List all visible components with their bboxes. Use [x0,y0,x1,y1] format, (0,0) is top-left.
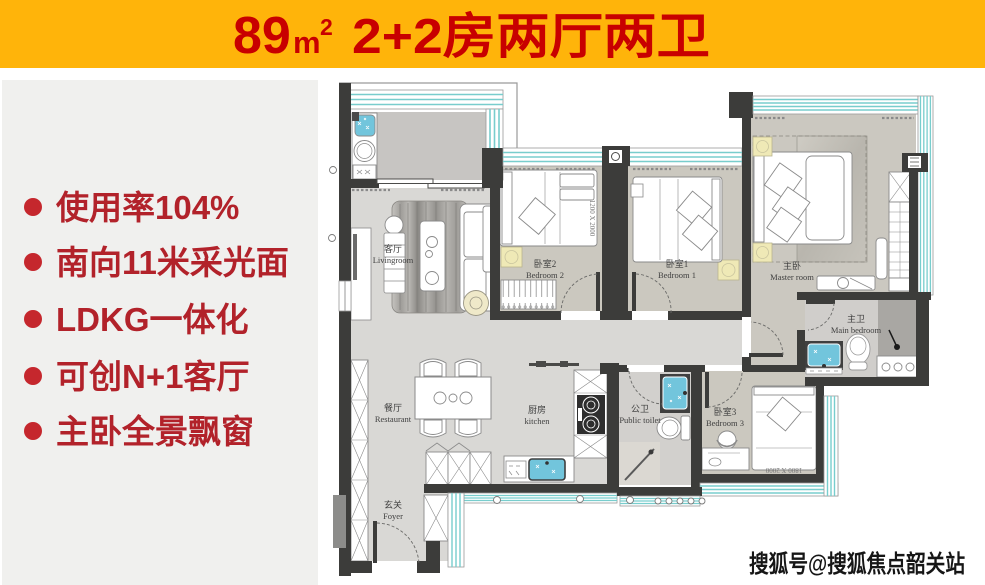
svg-text:1200 X 2000: 1200 X 2000 [588,200,596,237]
svg-text:公卫: 公卫 [631,404,649,414]
svg-text:主卫: 主卫 [847,313,865,324]
svg-text:Main bedroom: Main bedroom [831,325,882,335]
svg-text:主卧全景飘窗: 主卧全景飘窗 [56,413,254,450]
svg-text:厨房: 厨房 [528,404,546,415]
svg-text:玄关: 玄关 [384,499,402,510]
svg-text:Public toilet: Public toilet [619,415,661,425]
svg-text:1800 X 2000: 1800 X 2000 [765,466,802,474]
svg-text:89: 89 [233,7,291,65]
svg-text:搜狐号@搜狐焦点韶关站: 搜狐号@搜狐焦点韶关站 [749,550,965,578]
svg-text:使用率104%: 使用率104% [56,189,239,226]
svg-text:kitchen: kitchen [524,416,550,426]
svg-text:Livingroom: Livingroom [373,255,414,265]
svg-text:餐厅: 餐厅 [384,402,402,413]
svg-text:2+2房两厅两卫: 2+2房两厅两卫 [352,10,710,64]
svg-text:LDKG一体化: LDKG一体化 [56,301,249,338]
svg-text:Foyer: Foyer [383,511,403,521]
svg-text:Bedroom 2: Bedroom 2 [526,270,564,280]
svg-text:可创N+1客厅: 可创N+1客厅 [56,358,249,395]
svg-text:卧室2: 卧室2 [534,258,557,269]
svg-text:客厅: 客厅 [384,243,402,254]
svg-text:Restaurant: Restaurant [375,414,412,424]
svg-text:Master room: Master room [770,272,814,282]
svg-text:卧室1: 卧室1 [666,258,689,269]
svg-text:主卧: 主卧 [783,260,801,271]
svg-text:2: 2 [320,14,333,40]
svg-text:Bedroom 3: Bedroom 3 [706,418,744,428]
svg-text:m: m [293,25,321,60]
svg-text:Bedroom 1: Bedroom 1 [658,270,696,280]
svg-text:南向11米采光面: 南向11米采光面 [56,244,289,281]
svg-text:卧室3: 卧室3 [714,406,737,417]
